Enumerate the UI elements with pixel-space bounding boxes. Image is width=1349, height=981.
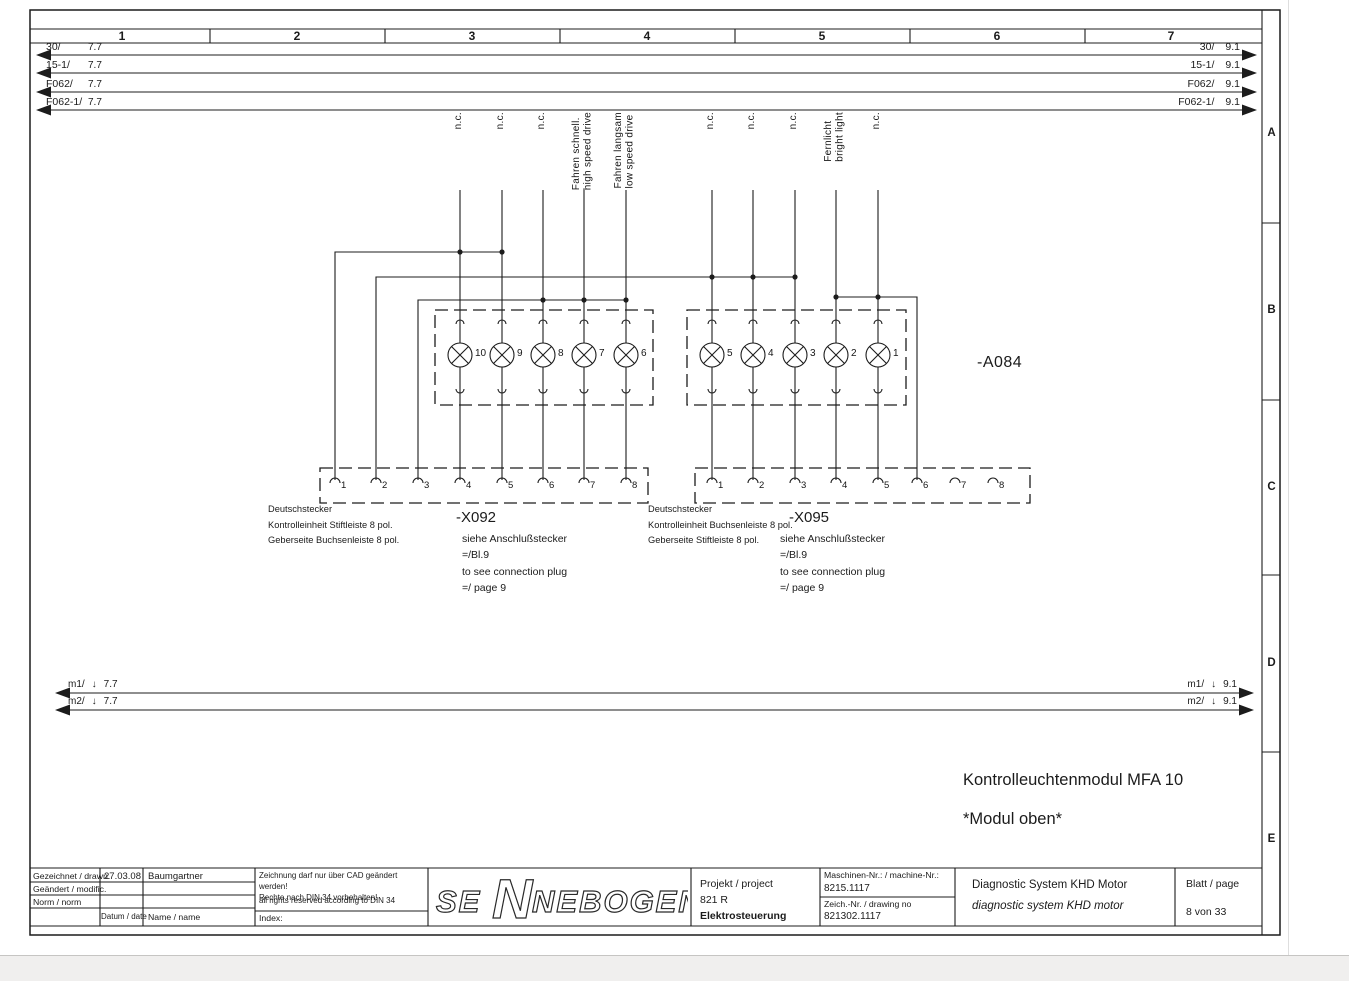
module-designation: -A084 [977,353,1022,373]
document-title: Diagnostic System KHD Motor [972,878,1127,892]
signal-label: Fernlicht bright light [823,112,846,162]
potential-name: m1/ [68,679,85,690]
drawing-number-label: Zeich.-Nr. / drawing no [824,899,911,910]
connector-designation-x095: -X095 [789,509,829,528]
potential-ref: 9.1 [1223,679,1237,690]
signal-label: n.c. [705,112,717,129]
potential-label-right: m1/↓9.1 [1187,679,1237,690]
pin-number: 3 [801,480,806,491]
lamp-number: 9 [517,348,523,359]
potential-name: m2/ [1187,696,1204,707]
lamp-number: 4 [768,348,774,359]
pin-number: 4 [842,480,847,491]
pin-number: 6 [549,480,554,491]
viewer-toolbar: 15 / 54 [0,955,1349,981]
svg-text:NEBOGEN: NEBOGEN [532,884,688,919]
pin-number: 4 [466,480,471,491]
potential-ref: 9.1 [1223,696,1237,707]
signal-label: Fahren langsam low speed drive [613,112,636,188]
column-label: 6 [982,29,1012,43]
modified-label: Geändert / modific. [33,884,106,895]
lamp-number: 7 [599,348,605,359]
column-label: 5 [807,29,837,43]
pin-number: 7 [961,480,966,491]
lamp-number: 1 [893,348,899,359]
document-title-translation: diagnostic system KHD motor [972,899,1123,913]
bus-label-right: 15-1/9.1 [1190,59,1240,71]
signal-label: Fahren schnell. high speed drive [571,112,594,190]
signal-label: n.c. [536,112,548,129]
connector-ref-note-x095: siehe Anschlußstecker =/Bl.9 to see conn… [780,531,885,596]
bus-label-right: F062/9.1 [1188,78,1240,90]
down-arrow-icon: ↓ [1211,696,1216,707]
column-label: 1 [107,29,137,43]
potential-label-right: m2/↓9.1 [1187,696,1237,707]
date-column-label: Datum / date [101,912,147,922]
down-arrow-icon: ↓ [92,696,97,707]
connector-ref-note-x092: siehe Anschlußstecker =/Bl.9 to see conn… [462,531,567,596]
potential-name: m1/ [1187,679,1204,690]
name-column-label: Name / name [148,912,200,923]
lamp-number: 5 [727,348,733,359]
function-title: Kontrolleuchtenmodul MFA 10 *Modul oben* [963,751,1183,829]
column-label: 7 [1156,29,1186,43]
lamp-number: 10 [475,348,486,359]
connector-type-note-x095: Deutschstecker Kontrolleinheit Buchsenle… [648,502,793,549]
bus-label-right: 30/9.1 [1200,41,1240,53]
pin-number: 1 [718,480,723,491]
bus-label: F062-1/ [1178,96,1214,108]
function-title-line2: *Modul oben* [963,810,1062,828]
signal-label: n.c. [746,112,758,129]
drawing-number: 821302.1117 [824,911,881,924]
bus-label: F062/ [46,78,73,90]
function-title-line1: Kontrolleuchtenmodul MFA 10 [963,771,1183,789]
potential-label: m1/↓7.7 [68,679,118,690]
bus-ref: 9.1 [1225,59,1240,71]
project-label: Projekt / project [700,878,773,891]
row-label: B [1264,304,1279,316]
potential-label: m2/↓7.7 [68,696,118,707]
page-label: Blatt / page [1186,878,1239,891]
bus-ref: 9.1 [1225,96,1240,108]
pin-number: 7 [590,480,595,491]
bus-ref: 7.7 [88,79,102,90]
project-dept: Elektrosteuerung [700,910,786,923]
connector-type-note-x092: Deutschstecker Kontrolleinheit Stiftleis… [268,502,399,549]
machine-number: 8215.1117 [824,883,870,896]
signal-label: n.c. [453,112,465,129]
potential-name: m2/ [68,696,85,707]
pin-number: 3 [424,480,429,491]
down-arrow-icon: ↓ [1211,679,1216,690]
pin-number: 8 [632,480,637,491]
down-arrow-icon: ↓ [92,679,97,690]
row-label: A [1264,127,1279,139]
row-label: D [1264,657,1279,669]
svg-text:SE: SE [436,884,481,919]
drawn-label: Gezeichnet / drawn. [33,871,110,882]
lamp-number: 8 [558,348,564,359]
pin-number: 5 [508,480,513,491]
bus-label: F062-1/ [46,96,82,108]
norm-label: Norm / norm [33,897,81,908]
bus-label-right: F062-1/9.1 [1178,96,1240,108]
bus-label: 30/ [46,41,61,53]
pin-number: 2 [759,480,764,491]
drawn-name: Baumgartner [148,871,203,883]
column-label: 3 [457,29,487,43]
bus-ref: 7.7 [88,97,102,108]
connector-designation-x092: -X092 [456,509,496,528]
column-label: 2 [282,29,312,43]
row-label: E [1264,833,1279,845]
bus-label: F062/ [1188,78,1215,90]
row-label: C [1264,481,1279,493]
bus-label: 15-1/ [1190,59,1214,71]
pin-number: 6 [923,480,928,491]
bus-ref: 7.7 [88,60,102,71]
rights-notice: all rights reserved according to DIN 34 [259,896,395,906]
lamp-number: 6 [641,348,647,359]
index-label: Index: [259,913,283,924]
bus-ref: 9.1 [1225,78,1240,90]
project-name: 821 R [700,894,728,907]
bus-ref: 9.1 [1225,41,1240,53]
lamp-number: 2 [851,348,857,359]
bus-label: 30/ [1200,41,1215,53]
pin-number: 8 [999,480,1004,491]
signal-label: n.c. [871,112,883,129]
page-edge-divider [1288,0,1289,955]
column-label: 4 [632,29,662,43]
bus-label: 15-1/ [46,59,70,71]
potential-ref: 7.7 [104,679,118,690]
drawn-date: 27.03.08 [104,871,141,883]
lamp-number: 3 [810,348,816,359]
bus-ref: 7.7 [88,42,102,53]
signal-label: n.c. [788,112,800,129]
pdf-viewer-window: 1 2 3 4 5 6 7 A B C D E 30/ 7.7 15-1/ 7.… [0,0,1349,981]
potential-ref: 7.7 [104,696,118,707]
svg-text:N: N [492,872,534,924]
signal-label: n.c. [495,112,507,129]
pin-number: 2 [382,480,387,491]
sennebogen-logo: SE N NEBOGEN [432,872,688,924]
page-value: 8 von 33 [1186,906,1226,919]
machine-number-label: Maschinen-Nr.: / machine-Nr.: [824,870,939,881]
pin-number: 5 [884,480,889,491]
pin-number: 1 [341,480,346,491]
